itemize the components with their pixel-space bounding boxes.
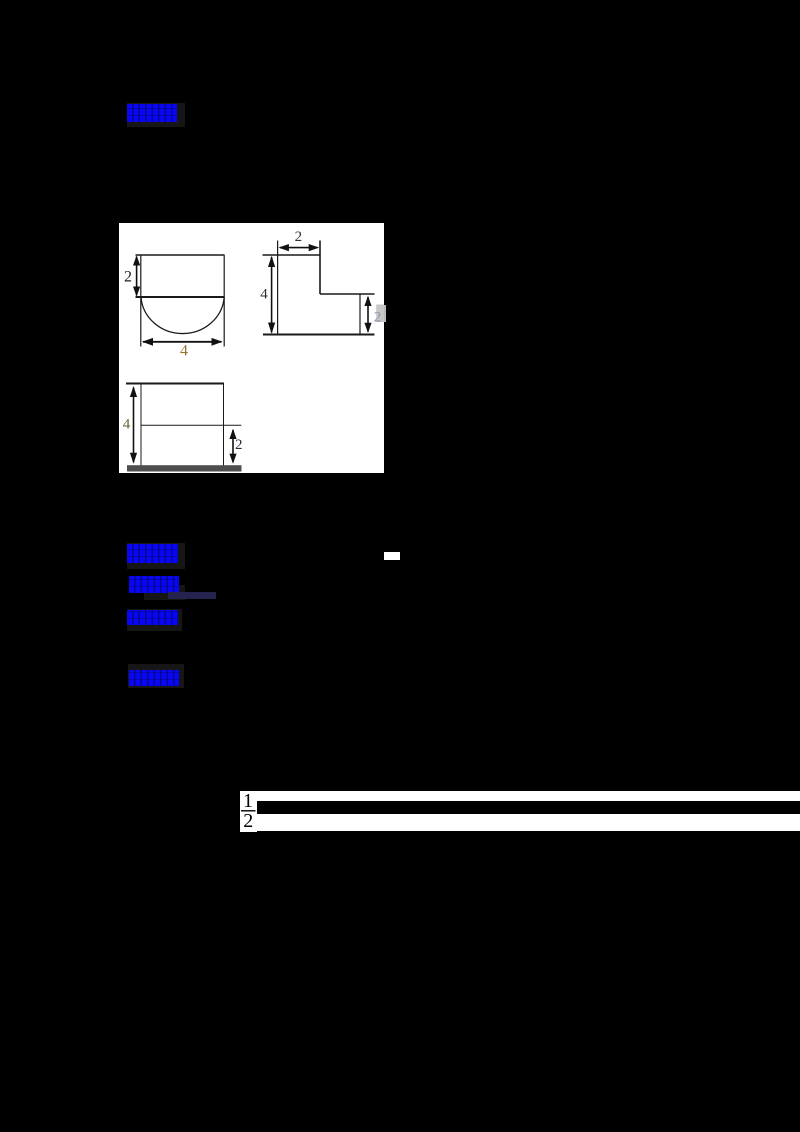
svg-text:2: 2	[235, 437, 243, 453]
svg-text:2: 2	[124, 269, 132, 286]
svg-text:1: 1	[243, 791, 253, 812]
svg-text:4: 4	[180, 343, 188, 360]
svg-text:4: 4	[260, 287, 268, 303]
svg-text:4: 4	[123, 417, 131, 433]
svg-text:2: 2	[295, 229, 303, 245]
svg-text:2: 2	[243, 810, 253, 832]
svg-text:2: 2	[374, 310, 382, 326]
